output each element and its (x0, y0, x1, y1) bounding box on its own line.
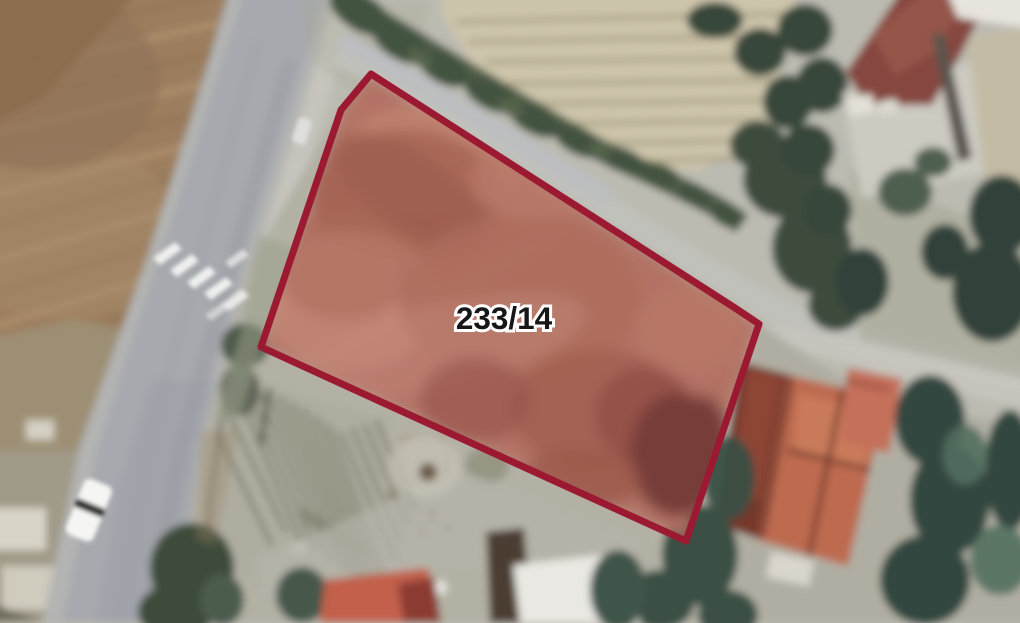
svg-text:233/14: 233/14 (456, 300, 553, 336)
